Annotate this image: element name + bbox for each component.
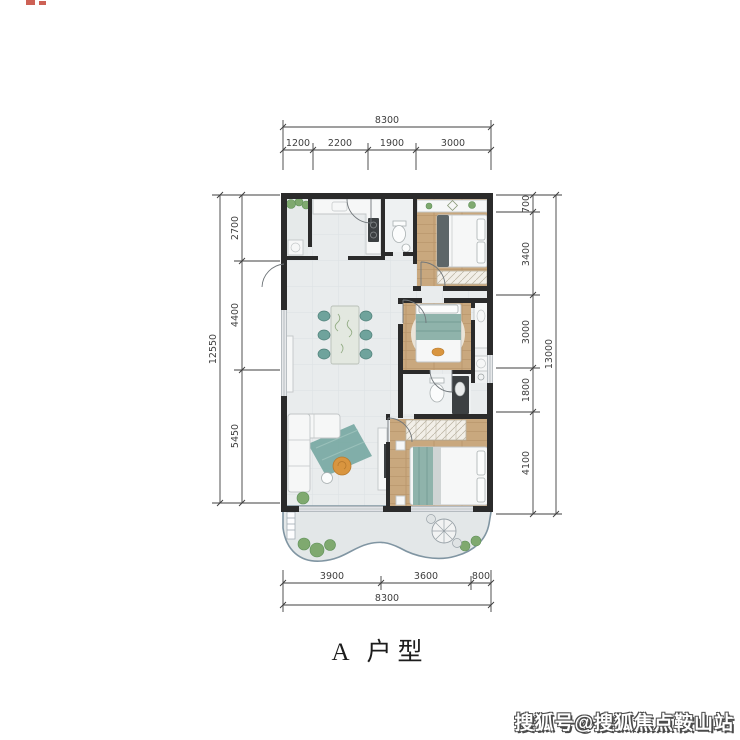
utility-room <box>474 302 488 380</box>
floor-plan-page: 8300 1200 2200 1900 3000 12550 2700 4400… <box>0 0 740 740</box>
dim-right-total: 13000 <box>544 339 555 369</box>
bedroom2 <box>411 304 465 362</box>
watermark: 搜狐号@搜狐焦点鞍山站 <box>514 708 734 735</box>
dim-left-seg3: 5450 <box>230 424 241 448</box>
dim-right-seg1: 700 <box>521 195 532 213</box>
dim-right-seg5: 4100 <box>521 451 532 475</box>
red-stamp-fragment <box>26 0 46 5</box>
floor-plan-drawing: 8300 1200 2200 1900 3000 12550 2700 4400… <box>0 0 740 740</box>
dim-top-seg3: 1900 <box>380 138 404 149</box>
dim-right-seg2: 3400 <box>521 242 532 266</box>
dim-bottom-total: 8300 <box>375 593 399 604</box>
dim-bottom-seg3: 800 <box>472 571 490 582</box>
dim-top-seg2: 2200 <box>328 138 352 149</box>
plan-title: A 户型 <box>20 632 740 668</box>
dim-left-seg2: 4400 <box>230 303 241 327</box>
dimension-bottom: 3900 3600 800 8300 <box>280 570 494 612</box>
dim-right-seg4: 1800 <box>521 378 532 402</box>
dim-bottom-seg1: 3900 <box>320 571 344 582</box>
dimension-left: 12550 2700 4400 5450 <box>208 192 280 506</box>
dim-top-seg4: 3000 <box>441 138 465 149</box>
dim-top-seg1: 1200 <box>286 138 310 149</box>
dim-left-total: 12550 <box>208 334 219 364</box>
dim-right-seg3: 3000 <box>521 320 532 344</box>
dimension-top: 8300 1200 2200 1900 3000 <box>280 115 494 170</box>
dim-bottom-seg2: 3600 <box>414 571 438 582</box>
dining-area <box>318 306 372 364</box>
dim-top-total: 8300 <box>375 115 399 126</box>
dim-left-seg1: 2700 <box>230 216 241 240</box>
dimension-right: 700 3400 3000 1800 4100 13000 <box>496 192 562 517</box>
